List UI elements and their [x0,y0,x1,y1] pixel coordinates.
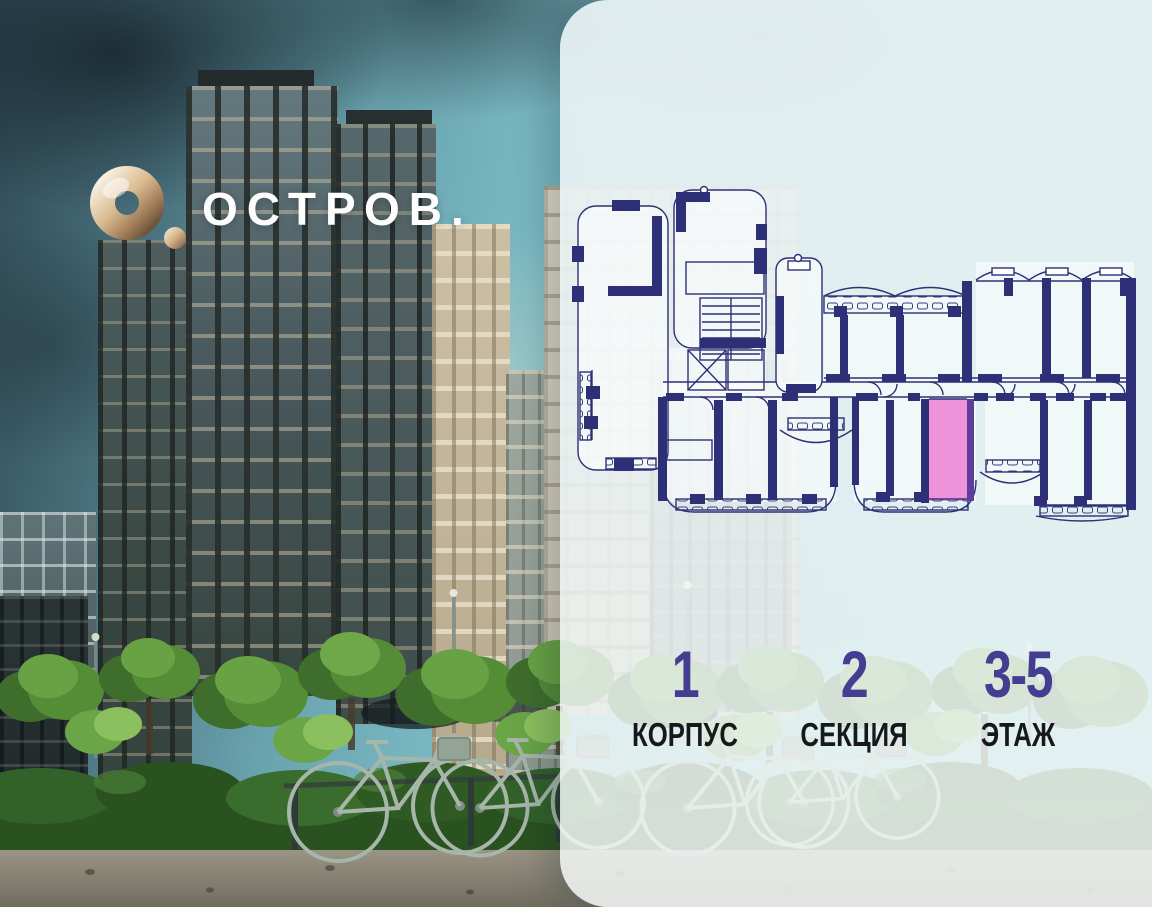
stat-floor-label: ЭТАЖ [981,716,1055,754]
stat-floor-value: 3-5 [982,641,1054,707]
stat-section: 2 СЕКЦИЯ [785,641,923,754]
stat-building-label: КОРПУС [632,716,738,754]
details-panel: 1 КОРПУС 2 СЕКЦИЯ 3-5 ЭТАЖ [560,0,1152,907]
stat-building-value: 1 [633,641,736,707]
screenshot-root: ОСТРОВ. [0,0,1152,907]
stat-section-label: СЕКЦИЯ [800,716,907,754]
gold-ring-icon [86,156,196,256]
highlighted-unit[interactable] [929,399,967,501]
brand-name: ОСТРОВ. [202,182,473,236]
stat-floor: 3-5 ЭТАЖ [970,641,1065,754]
brand-logo: ОСТРОВ. [86,156,526,256]
unit-location-stats: 1 КОРПУС 2 СЕКЦИЯ 3-5 ЭТАЖ [560,641,1152,761]
floor-plan [560,0,1152,907]
stat-building: 1 КОРПУС [617,641,753,754]
stat-section-value: 2 [802,641,907,707]
